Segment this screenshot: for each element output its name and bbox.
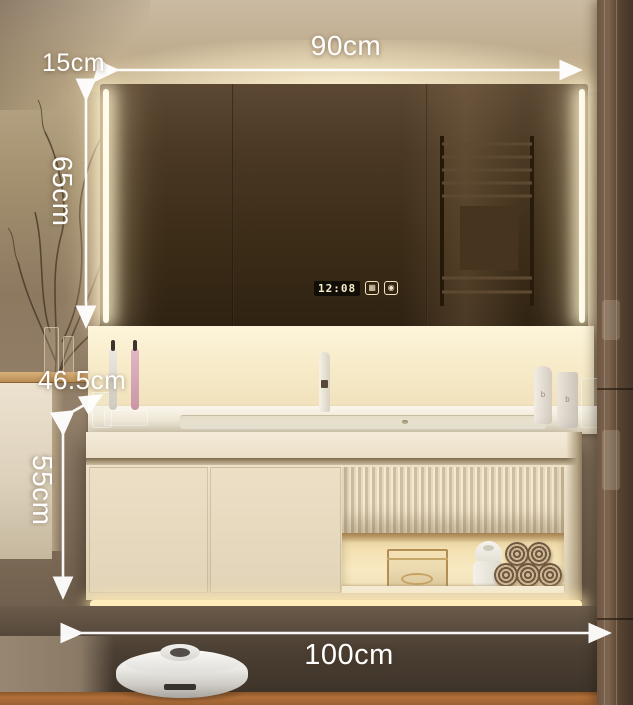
glass-reflection-streak bbox=[604, 0, 605, 705]
light-icon: ◉ bbox=[384, 281, 398, 295]
partition-frame bbox=[597, 388, 633, 390]
mirror-led-strip-left bbox=[103, 89, 109, 323]
cabinet-door-right bbox=[210, 467, 341, 593]
toothbrush-stand bbox=[104, 410, 148, 426]
toothbrush-pink bbox=[131, 348, 139, 410]
mirror-clock: 12:08 bbox=[314, 281, 360, 296]
countertop bbox=[88, 406, 600, 434]
mirror-door-seam bbox=[232, 84, 234, 328]
led-mirror-cabinet: 12:08 ▦ ◉ bbox=[100, 84, 588, 328]
sink-drain bbox=[402, 420, 408, 424]
lotion-tube: b bbox=[534, 366, 552, 424]
vanity-cabinet bbox=[86, 432, 582, 600]
vanity-side-panel bbox=[566, 432, 582, 600]
jewelry-box-lid bbox=[387, 558, 448, 560]
mirror-led-strip-right bbox=[579, 89, 585, 323]
defogger-icon: ▦ bbox=[365, 281, 379, 295]
towel-roll bbox=[538, 563, 562, 587]
towel-roll bbox=[527, 542, 551, 566]
open-shelf bbox=[342, 533, 564, 593]
vanity-apron bbox=[86, 432, 582, 458]
pump-bottle: b bbox=[557, 372, 578, 428]
cabinet-door-left bbox=[89, 467, 208, 593]
robot-front-sensor bbox=[164, 684, 196, 690]
floor-left-tile bbox=[0, 636, 114, 696]
robot-lidar-turret bbox=[160, 644, 200, 661]
toilet-paper-roll bbox=[475, 541, 502, 563]
glass-partition bbox=[597, 0, 633, 705]
toothbrush-head bbox=[133, 340, 137, 351]
towel-roll bbox=[516, 563, 540, 587]
handle-groove bbox=[86, 458, 582, 465]
sink-basin bbox=[180, 415, 546, 429]
dimension-label-mirror-offset: 15cm bbox=[42, 49, 105, 78]
dimension-label-cabinet-width: 100cm bbox=[294, 639, 404, 672]
cabinet-reflection bbox=[602, 430, 620, 490]
dimension-label-mirror-height: 65cm bbox=[46, 156, 78, 226]
glass-reflection-streak bbox=[616, 0, 617, 705]
jewelry-chain bbox=[401, 573, 433, 585]
robot-lidar-sensor bbox=[170, 648, 190, 657]
partition-frame bbox=[597, 618, 633, 620]
mirror-touch-panel: 12:08 ▦ ◉ bbox=[314, 280, 398, 296]
faucet bbox=[319, 352, 330, 412]
dimension-label-mirror-width: 90cm bbox=[298, 30, 394, 62]
robot-vacuum bbox=[116, 644, 248, 702]
bathroom-product-photo: 12:08 ▦ ◉ b b bbox=[0, 0, 633, 705]
towel-radiator-reflection bbox=[430, 130, 550, 310]
jewelry-box bbox=[387, 549, 448, 591]
dimension-label-cabinet-height: 55cm bbox=[26, 455, 58, 525]
towel-roll bbox=[505, 542, 529, 566]
toilet-paper-core bbox=[483, 545, 494, 551]
bottle-reflection bbox=[602, 300, 620, 340]
shelf-board bbox=[342, 586, 564, 593]
dimension-label-counter-depth: 46.5cm bbox=[38, 365, 126, 396]
fluted-drawer-panel bbox=[342, 467, 564, 533]
faucet-sensor bbox=[321, 380, 328, 388]
wood-floor-strip bbox=[0, 692, 633, 705]
toothbrush-head bbox=[111, 340, 115, 351]
towel-roll bbox=[494, 563, 518, 587]
